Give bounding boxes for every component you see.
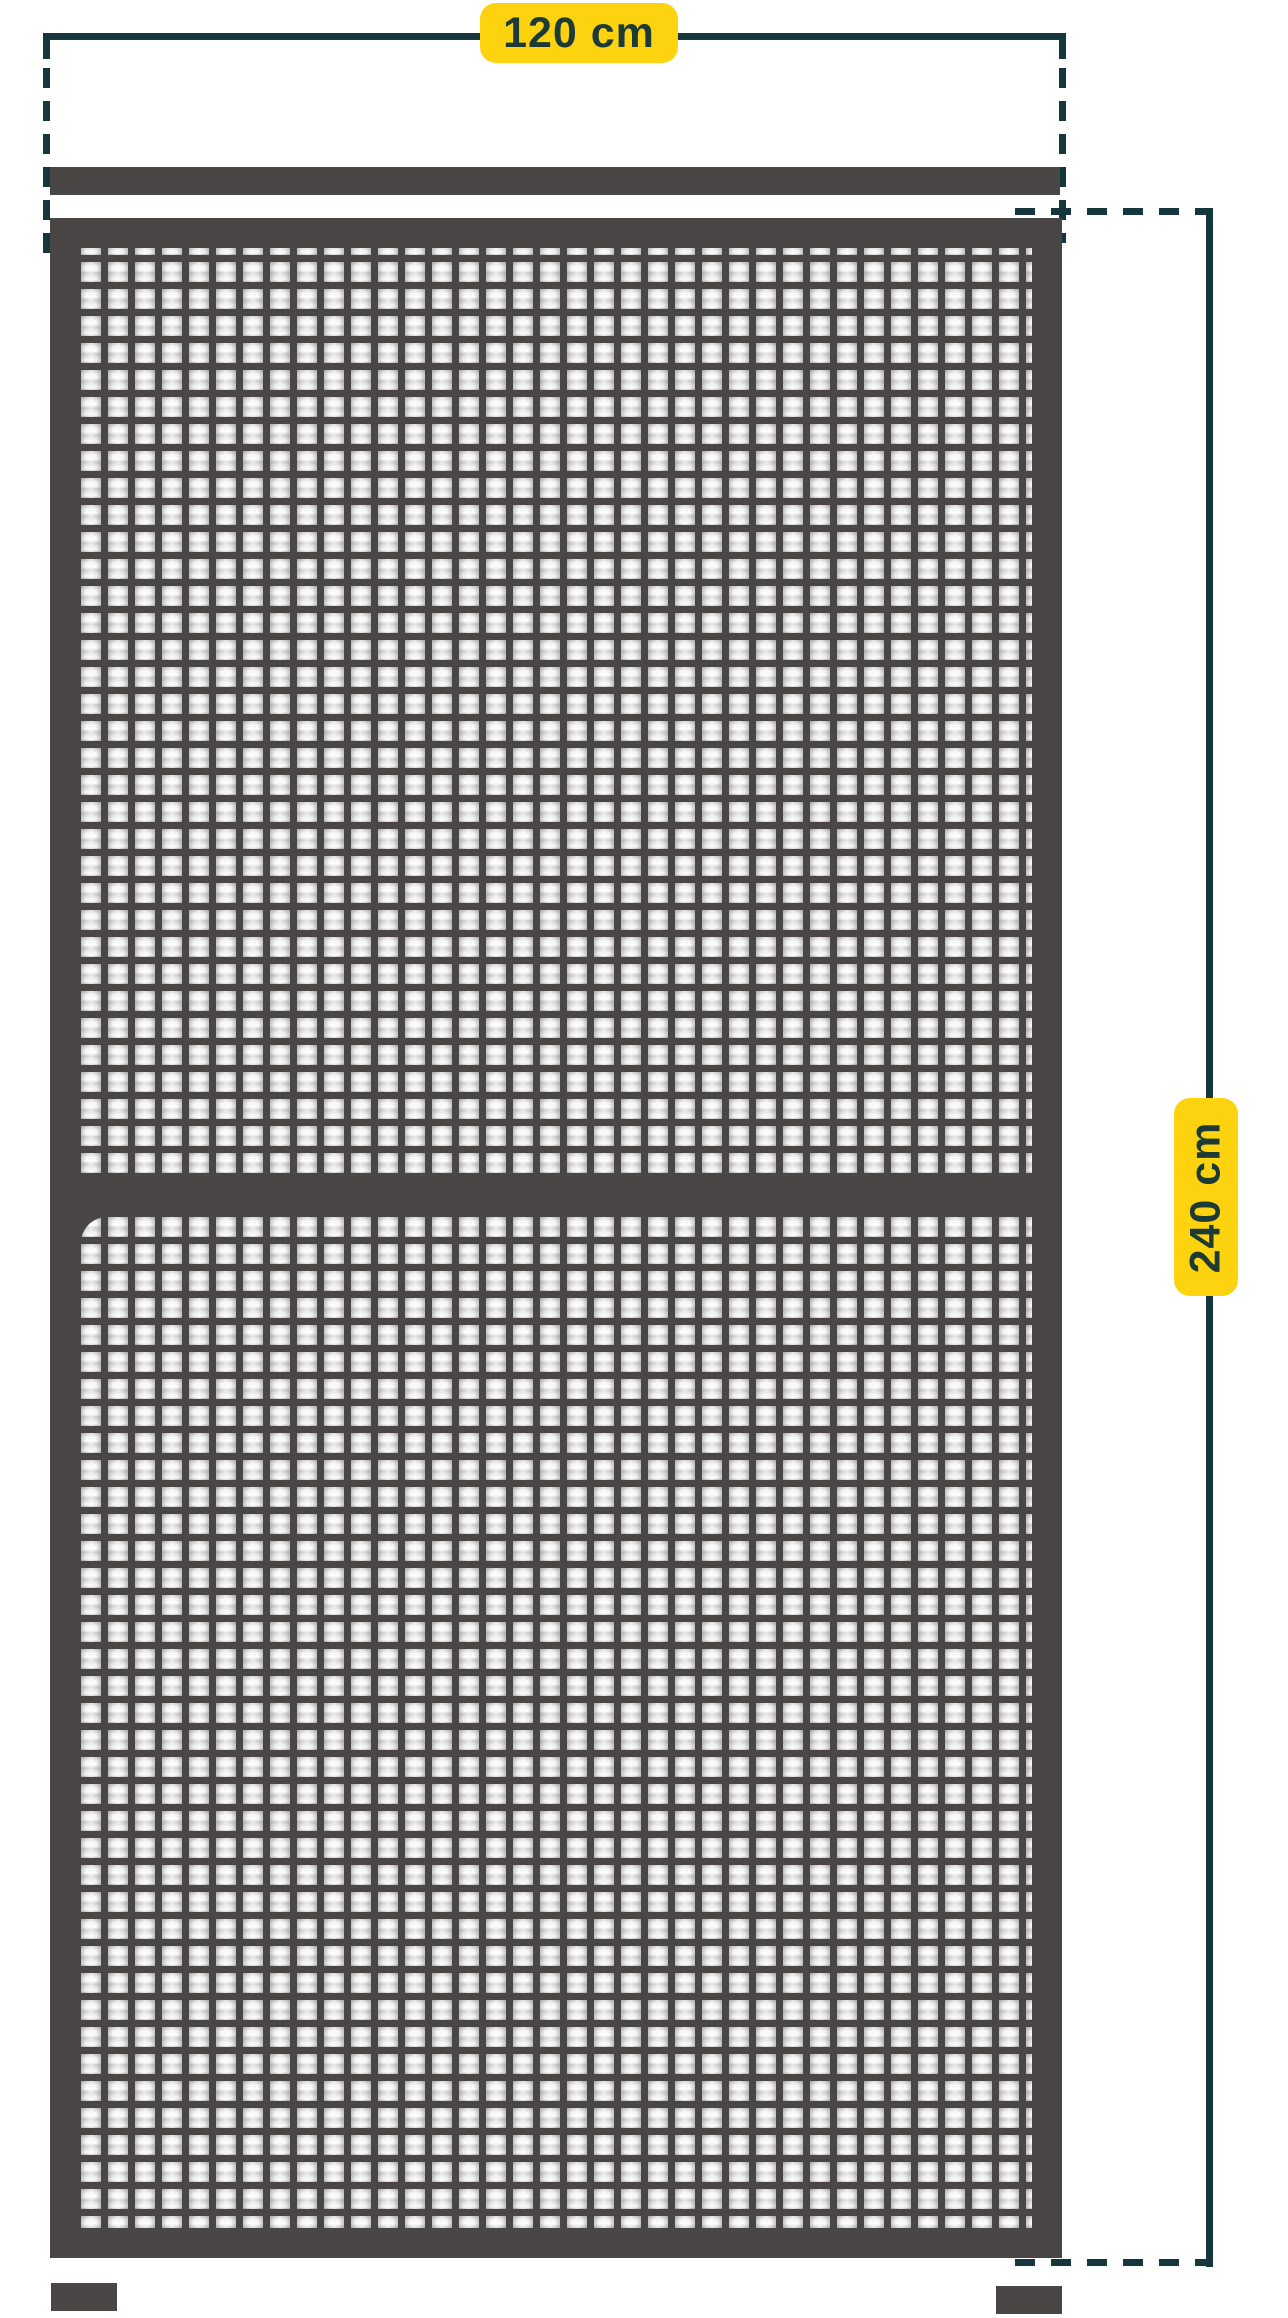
width-dimension-cap-right: [1059, 33, 1066, 59]
width-dimension-text: 120 cm: [503, 9, 655, 58]
mesh-panel-lower: [81, 1217, 1032, 2228]
height-dimension-stub-bottom: [1196, 2259, 1213, 2266]
top-mounting-rail: [50, 167, 1060, 195]
height-extension-line-top: [1015, 208, 1198, 215]
middle-crossbar: [81, 1180, 1032, 1217]
height-dimension-label: 240 cm: [1174, 1098, 1238, 1296]
width-dimension-label: 120 cm: [480, 3, 678, 63]
width-extension-line-left: [43, 68, 50, 261]
diagram-stage: 120 cm 240 cm: [0, 0, 1288, 2318]
foot-left: [51, 2283, 117, 2311]
width-extension-line-right: [1059, 68, 1066, 243]
height-dimension-text: 240 cm: [1182, 1121, 1231, 1273]
screen-door-frame: [50, 218, 1062, 2258]
foot-right: [996, 2286, 1062, 2314]
height-extension-line-bottom: [1015, 2259, 1198, 2266]
width-dimension-cap-left: [43, 33, 50, 59]
mesh-panel-upper: [81, 248, 1032, 1180]
